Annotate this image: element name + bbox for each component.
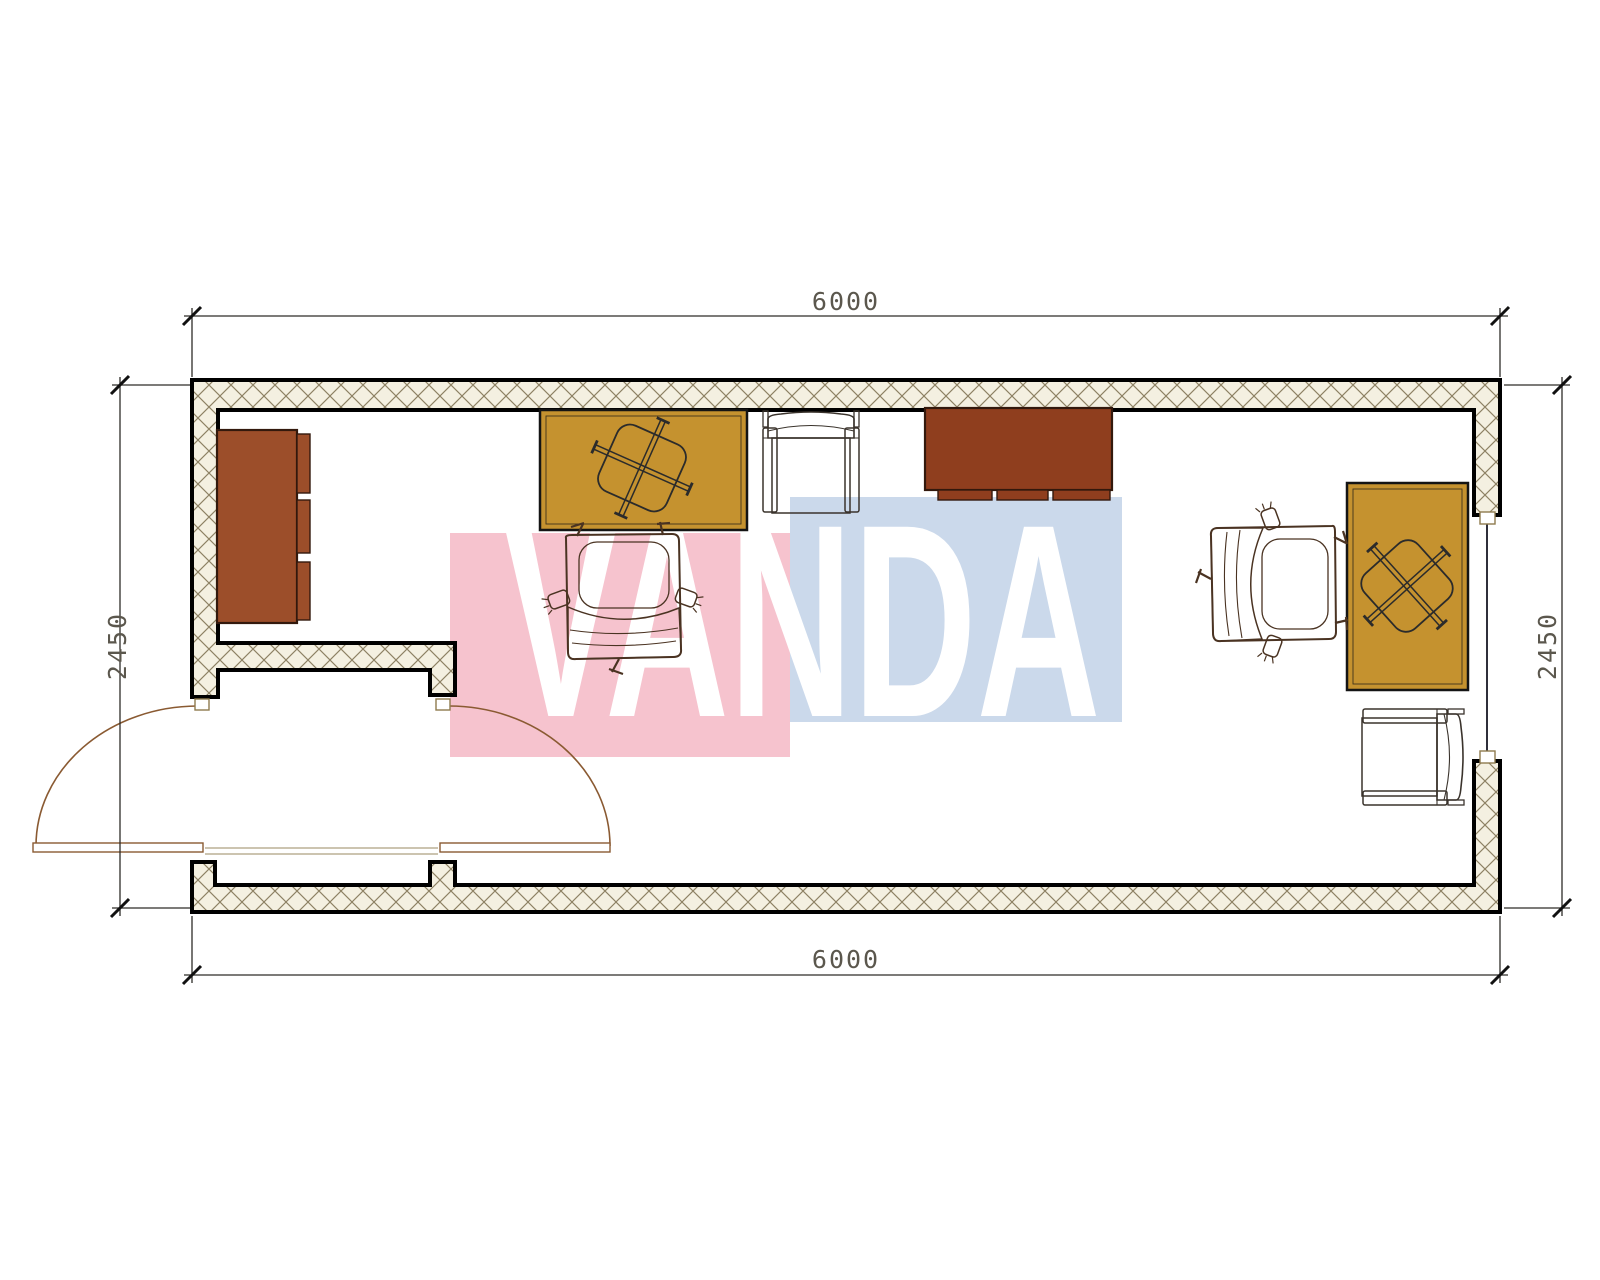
floor-plan-drawing: VANDA (0, 0, 1600, 1280)
desk-2-top (1347, 483, 1468, 690)
sideboard-foot (938, 490, 992, 500)
dimension-left: 2450 (103, 376, 190, 917)
dimension-left-value: 2450 (103, 612, 132, 680)
dimension-bottom: 6000 (183, 916, 1509, 984)
wardrobe-door-strip (297, 434, 310, 493)
door-threshold (205, 848, 438, 854)
dimension-right: 2450 (1504, 376, 1571, 917)
door-leaf-right (440, 843, 610, 852)
armchair-2 (1362, 709, 1464, 805)
dimension-right-value: 2450 (1533, 612, 1562, 680)
wardrobe-body (217, 430, 297, 623)
door-jamb-right (436, 699, 450, 710)
dimension-bottom-value: 6000 (812, 945, 880, 974)
floor-plan-page: VANDA (0, 0, 1600, 1280)
door-jamb-left (195, 699, 209, 710)
window-jamb-top (1480, 512, 1495, 524)
window-jamb-bottom (1480, 751, 1495, 763)
wardrobe-door-strip (297, 500, 310, 553)
sideboard-body (925, 408, 1112, 490)
sideboard-foot (1053, 490, 1110, 500)
desk-2 (1334, 483, 1481, 690)
door-swing-arc-left (36, 706, 197, 846)
sideboard-foot (997, 490, 1048, 500)
wardrobe-door-strip (297, 562, 310, 620)
wall-lower-structure (192, 761, 1500, 912)
task-chair-2 (1196, 500, 1348, 664)
desk-1 (540, 399, 747, 536)
dimension-top: 6000 (183, 287, 1509, 377)
window-right (1480, 512, 1495, 763)
wardrobe (217, 430, 310, 623)
sideboard (925, 408, 1112, 500)
door-leaf-left (33, 843, 203, 852)
dimension-top-value: 6000 (812, 287, 880, 316)
